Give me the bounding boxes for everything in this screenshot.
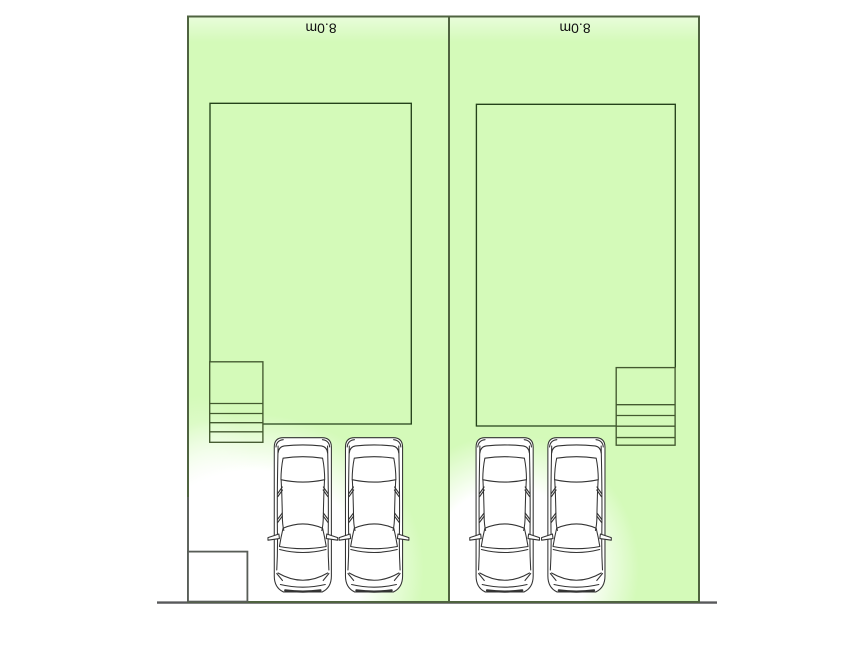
svg-text:8.0m: 8.0m (305, 20, 336, 36)
svg-text:8.0m: 8.0m (559, 20, 590, 36)
